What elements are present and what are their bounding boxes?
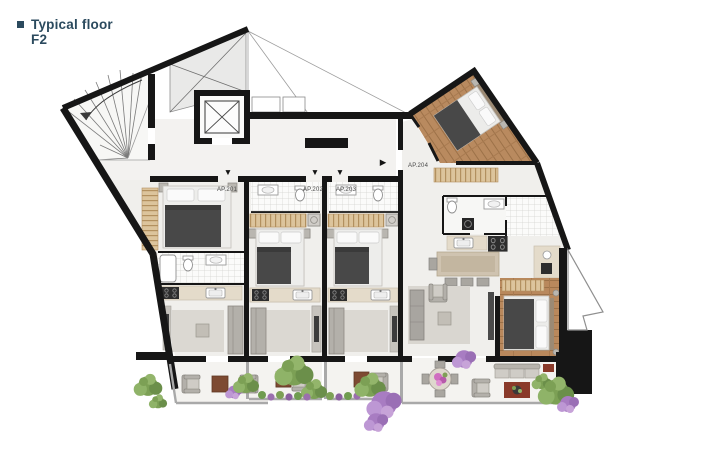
unit-label-ap202: AP.202 [303, 187, 324, 193]
bedroom-se-wardrobe [502, 280, 544, 291]
bathtub [160, 255, 176, 282]
terrace-outline-se [568, 250, 603, 330]
entry-wardrobe [434, 168, 498, 182]
floor-plan-canvas: ▼ ▼ ▼ ▶ AP.201 AP.202 AP.203 AP.204 [0, 0, 705, 470]
unit-label-ap204: AP.204 [408, 163, 429, 169]
sink-204 [484, 199, 504, 209]
door-arrow-ap202-icon: ▼ [311, 167, 319, 177]
bedroom-se-bed [504, 290, 559, 355]
unit-label-ap201: AP.201 [217, 187, 238, 193]
toilet-204 [447, 198, 457, 213]
stairwell-floor [64, 71, 150, 160]
door-arrow-ap204-icon: ▶ [380, 157, 387, 167]
living-room [163, 306, 243, 354]
duct-shafts [252, 97, 305, 112]
elevator [194, 90, 250, 145]
door-arrow-ap201-icon: ▼ [224, 167, 232, 177]
floor-plan-page: Typical floor F2 [0, 0, 705, 470]
door-arrow-ap203-icon: ▼ [336, 167, 344, 177]
toilet [183, 256, 193, 271]
elevator-door-gap [212, 138, 232, 145]
bathroom-sink [206, 255, 226, 265]
kitchen [158, 286, 242, 300]
washing-machine [462, 218, 474, 230]
unit-label-ap203: AP.203 [336, 187, 357, 193]
